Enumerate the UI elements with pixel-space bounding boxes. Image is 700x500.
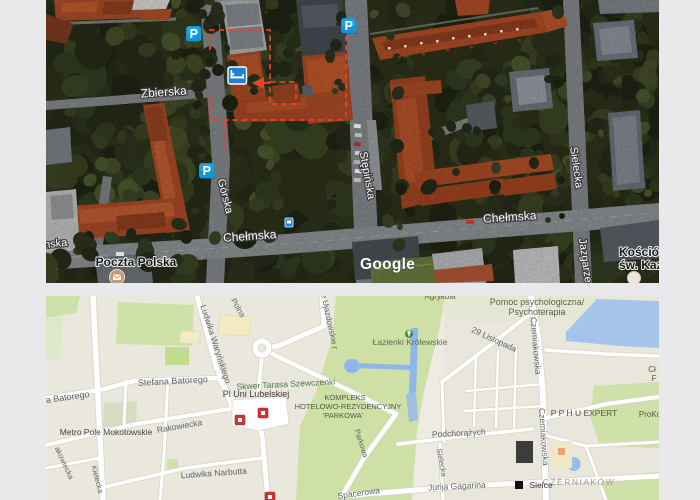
svg-text:ProKo: ProKo <box>639 410 659 419</box>
svg-text:Sielce: Sielce <box>529 480 552 490</box>
svg-text:Psychoterapia: Psychoterapia <box>508 307 565 317</box>
svg-text:Pomoc psychologiczna/: Pomoc psychologiczna/ <box>490 297 585 307</box>
svg-text:KOMPLEKS: KOMPLEKS <box>324 393 365 402</box>
svg-text:HOTELOWO-REZYDENCYJNY: HOTELOWO-REZYDENCYJNY <box>295 402 402 411</box>
svg-text:nska: nska <box>46 237 69 251</box>
svg-text:Poczta Polska: Poczta Polska <box>96 255 177 269</box>
svg-text:Google: Google <box>360 256 415 273</box>
svg-text:'PARKOWA': 'PARKOWA' <box>323 411 364 420</box>
svg-text:CZERNIAKÓW: CZERNIAKÓW <box>543 477 616 487</box>
svg-text:Metro Pole Mokotowskie: Metro Pole Mokotowskie <box>60 427 153 437</box>
svg-text:P: P <box>203 164 211 178</box>
svg-text:P: P <box>345 19 353 33</box>
svg-text:Łazienki Królewskie: Łazienki Królewskie <box>373 337 448 347</box>
svg-text:P: P <box>190 27 198 41</box>
svg-text:Agrykola: Agrykola <box>424 296 456 301</box>
svg-text:F: F <box>652 374 657 383</box>
svg-text:P P H U EXPERT: P P H U EXPERT <box>551 408 618 418</box>
svg-text:św. Kaz: św. Kaz <box>619 258 659 272</box>
svg-text:Cł: Cł <box>648 365 656 374</box>
svg-text:Kościół: Kościół <box>619 245 659 259</box>
